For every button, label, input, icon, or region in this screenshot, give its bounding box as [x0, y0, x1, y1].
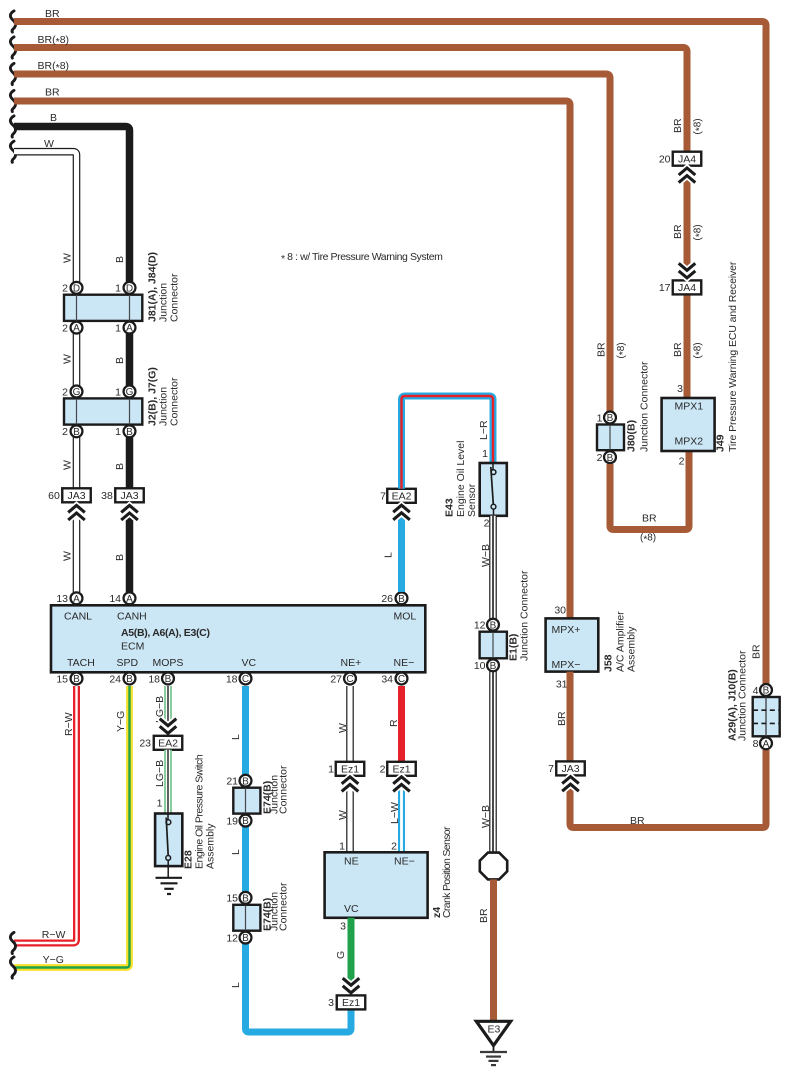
svg-text:B: B	[607, 413, 614, 424]
svg-text:G: G	[335, 951, 347, 959]
svg-text:3: 3	[340, 921, 346, 933]
svg-text:1: 1	[339, 841, 345, 853]
svg-text:JA3: JA3	[67, 490, 85, 502]
svg-text:(*8): (*8)	[693, 118, 706, 134]
svg-text:Ez1: Ez1	[342, 997, 360, 1009]
svg-text:L: L	[230, 734, 242, 740]
svg-text:1: 1	[115, 283, 121, 295]
svg-text:2: 2	[597, 452, 603, 464]
svg-text:BR: BR	[630, 815, 645, 827]
svg-text:8: 8	[753, 738, 759, 750]
svg-text:2: 2	[484, 518, 490, 530]
svg-text:1: 1	[328, 764, 334, 776]
svg-text:20: 20	[659, 154, 671, 166]
svg-text:B: B	[607, 453, 614, 464]
svg-text:B: B	[50, 112, 57, 124]
svg-text:2: 2	[62, 426, 68, 438]
svg-text:W: W	[62, 551, 74, 561]
svg-text:NE: NE	[344, 856, 359, 868]
svg-text:12: 12	[474, 620, 486, 632]
svg-text:21: 21	[226, 776, 238, 788]
svg-text:EA2: EA2	[158, 738, 178, 750]
svg-text:W: W	[62, 253, 74, 263]
svg-text:L−W: L−W	[389, 802, 401, 824]
svg-text:D: D	[73, 283, 80, 294]
svg-text:2: 2	[62, 386, 68, 398]
svg-text:W: W	[62, 354, 74, 364]
svg-text:CANH: CANH	[117, 611, 147, 623]
svg-text:B: B	[763, 686, 770, 697]
svg-text:E43: E43	[444, 498, 456, 517]
svg-text:Y−G: Y−G	[43, 954, 64, 966]
svg-text:C: C	[346, 674, 353, 685]
svg-text:BR: BR	[45, 8, 60, 20]
svg-text:W: W	[62, 460, 74, 470]
svg-text:D: D	[126, 283, 133, 294]
svg-text:BR: BR	[672, 118, 684, 133]
svg-text:(*8): (*8)	[616, 342, 629, 358]
svg-text:A: A	[126, 594, 133, 605]
svg-text:1: 1	[115, 322, 121, 334]
svg-text:TACH: TACH	[67, 657, 95, 669]
svg-text:CANL: CANL	[64, 611, 92, 623]
svg-text:B: B	[126, 427, 133, 438]
svg-text:MPX+: MPX+	[552, 624, 581, 636]
svg-text:MOL: MOL	[394, 611, 417, 623]
svg-text:(*8): (*8)	[693, 342, 706, 358]
svg-text:G: G	[126, 387, 134, 398]
svg-text:B: B	[242, 776, 249, 787]
svg-text:B: B	[490, 620, 497, 631]
svg-text:JA3: JA3	[120, 490, 138, 502]
svg-text:18: 18	[226, 673, 238, 685]
svg-text:15: 15	[56, 673, 68, 685]
svg-text:2: 2	[62, 322, 68, 334]
svg-text:13: 13	[56, 593, 68, 605]
svg-text:BR: BR	[672, 224, 684, 239]
svg-text:12: 12	[226, 932, 238, 944]
svg-text:J58: J58	[603, 654, 615, 672]
svg-text:Sensor: Sensor	[466, 483, 478, 517]
svg-text:17: 17	[659, 282, 671, 294]
svg-text:Connector: Connector	[278, 765, 290, 814]
svg-text:SPD: SPD	[117, 657, 139, 669]
svg-text:1: 1	[115, 426, 121, 438]
svg-text:Tire Pressure Warning ECU and: Tire Pressure Warning ECU and Receiver	[727, 261, 739, 452]
svg-text:Connector: Connector	[278, 882, 290, 931]
svg-text:24: 24	[109, 673, 121, 685]
svg-text:MPX1: MPX1	[675, 401, 704, 413]
svg-text:7: 7	[380, 491, 386, 503]
svg-text:Crank Position Sensor: Crank Position Sensor	[441, 826, 453, 918]
svg-text:BR(*8): BR(*8)	[38, 60, 70, 74]
svg-text:15: 15	[226, 893, 238, 905]
svg-text:J49: J49	[715, 434, 727, 452]
svg-text:3: 3	[677, 383, 683, 395]
svg-text:23: 23	[139, 738, 151, 750]
svg-text:L−R: L−R	[478, 420, 490, 440]
svg-text:E3: E3	[488, 1024, 501, 1036]
svg-text:2: 2	[380, 764, 386, 776]
svg-text:MPX2: MPX2	[675, 436, 704, 448]
svg-text:JA4: JA4	[678, 282, 696, 294]
svg-text:JA4: JA4	[678, 154, 696, 166]
svg-text:W−B: W−B	[480, 544, 492, 567]
svg-text:NE+: NE+	[341, 657, 362, 669]
svg-text:1: 1	[157, 798, 163, 810]
svg-text:W: W	[337, 810, 349, 820]
svg-text:A: A	[763, 739, 770, 750]
svg-text:Assembly: Assembly	[626, 626, 638, 672]
svg-text:ECM: ECM	[121, 641, 144, 653]
svg-text:R: R	[388, 719, 400, 727]
svg-text:26: 26	[381, 593, 393, 605]
svg-text:B: B	[114, 463, 126, 470]
svg-text:1: 1	[482, 448, 488, 460]
svg-text:BR: BR	[478, 908, 490, 923]
svg-text:EA2: EA2	[392, 491, 412, 503]
svg-text:1: 1	[115, 386, 121, 398]
svg-text:30: 30	[554, 605, 566, 617]
svg-text:BR: BR	[642, 513, 657, 525]
svg-text:NE−: NE−	[394, 856, 415, 868]
svg-text:B: B	[73, 674, 80, 685]
svg-text:L: L	[230, 982, 242, 988]
svg-text:B: B	[114, 256, 126, 263]
svg-text:* 8 : w/ Tire Pressure Warning: * 8 : w/ Tire Pressure Warning System	[281, 251, 443, 265]
svg-text:Connector: Connector	[169, 377, 181, 426]
svg-text:2: 2	[391, 841, 397, 853]
svg-text:VC: VC	[242, 657, 257, 669]
svg-text:14: 14	[109, 593, 121, 605]
svg-text:BR: BR	[556, 711, 568, 726]
svg-text:B: B	[114, 554, 126, 561]
svg-text:L: L	[230, 849, 242, 855]
svg-text:18: 18	[148, 673, 160, 685]
svg-text:7: 7	[548, 763, 554, 775]
svg-text:Junction Connector: Junction Connector	[519, 570, 531, 661]
svg-text:C: C	[242, 674, 249, 685]
svg-text:MOPS: MOPS	[153, 657, 184, 669]
svg-text:Connector: Connector	[169, 273, 181, 322]
svg-text:L: L	[383, 552, 395, 558]
svg-text:Junction Connector: Junction Connector	[639, 361, 651, 452]
svg-text:38: 38	[101, 490, 113, 502]
svg-text:60: 60	[48, 490, 60, 502]
svg-text:W: W	[44, 138, 54, 150]
svg-text:10: 10	[474, 660, 486, 672]
svg-text:B: B	[114, 357, 126, 364]
svg-text:A5(B), A6(A), E3(C): A5(B), A6(A), E3(C)	[121, 627, 210, 639]
svg-text:NE−: NE−	[394, 657, 415, 669]
svg-text:B: B	[165, 674, 172, 685]
svg-text:VC: VC	[344, 903, 359, 915]
svg-text:1: 1	[597, 412, 603, 424]
svg-text:BR: BR	[596, 342, 608, 357]
svg-text:LG−B: LG−B	[154, 760, 166, 787]
svg-text:W: W	[337, 723, 349, 733]
svg-text:G: G	[73, 387, 81, 398]
svg-text:B: B	[398, 594, 405, 605]
svg-text:B: B	[73, 427, 80, 438]
svg-text:34: 34	[381, 673, 393, 685]
svg-text:2: 2	[679, 456, 685, 468]
svg-text:A: A	[126, 323, 133, 334]
svg-text:BR: BR	[672, 342, 684, 357]
svg-text:MPX−: MPX−	[552, 659, 581, 671]
svg-text:19: 19	[226, 815, 238, 827]
svg-text:4: 4	[753, 685, 759, 697]
svg-text:W−B: W−B	[480, 805, 492, 828]
svg-text:BR(*8): BR(*8)	[38, 34, 70, 48]
svg-text:B: B	[242, 816, 249, 827]
svg-text:B: B	[242, 933, 249, 944]
svg-text:C: C	[398, 674, 405, 685]
svg-text:BR: BR	[751, 644, 763, 659]
svg-text:27: 27	[330, 673, 342, 685]
svg-text:Assembly: Assembly	[205, 823, 217, 869]
svg-text:A: A	[73, 323, 80, 334]
svg-text:2: 2	[62, 283, 68, 295]
svg-text:(*8): (*8)	[693, 224, 706, 240]
svg-text:R−W: R−W	[42, 929, 66, 941]
svg-text:Y−G: Y−G	[115, 711, 127, 732]
svg-text:J80(B): J80(B)	[626, 420, 638, 452]
svg-text:B: B	[126, 674, 133, 685]
svg-text:A: A	[73, 594, 80, 605]
svg-text:B: B	[242, 893, 249, 904]
svg-text:R−W: R−W	[63, 712, 75, 736]
svg-text:31: 31	[556, 679, 568, 691]
svg-text:B: B	[490, 661, 497, 672]
svg-text:3: 3	[328, 997, 334, 1009]
svg-text:BR: BR	[45, 87, 60, 99]
svg-text:(*8): (*8)	[640, 533, 656, 546]
svg-text:Junction Connector: Junction Connector	[737, 650, 749, 741]
